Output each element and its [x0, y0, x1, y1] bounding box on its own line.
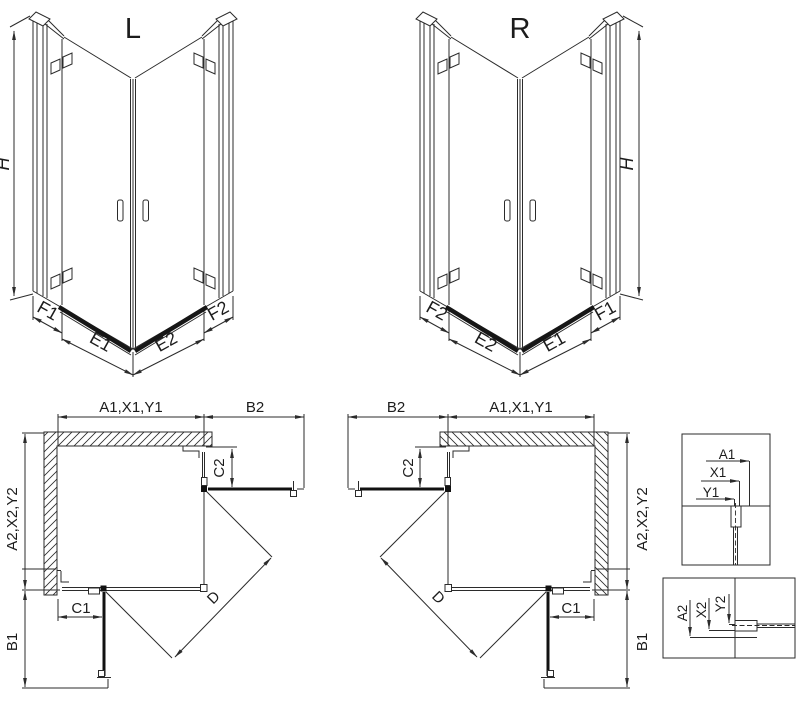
dim-label-height-right: H — [617, 157, 637, 171]
dim-label-e2-right: E2 — [471, 328, 500, 356]
dim-label-b2-planleft: B2 — [246, 399, 264, 416]
dim-label-x1-detail: X1 — [710, 465, 727, 480]
dim-label-b1-planright: B1 — [634, 633, 651, 651]
wall-profile-section — [731, 506, 741, 527]
enclosure-3d-right-view — [416, 12, 643, 377]
shower-enclosure-drawing: L H F1 E1 E2 F2 R H F2 E2 E1 F1 A1,X1,Y1… — [0, 0, 800, 704]
plan-view-left — [22, 414, 304, 688]
dim-label-f2-left: F2 — [204, 297, 232, 325]
dim-label-a2-detail: A2 — [675, 605, 690, 622]
dim-label-e1-left: E1 — [86, 328, 115, 356]
enclosure-3d-left-view — [10, 12, 237, 377]
dim-label-a1-detail: A1 — [719, 447, 736, 462]
dim-label-a1x1y1-planleft: A1,X1,Y1 — [99, 399, 162, 416]
dim-label-c2-planleft: C2 — [211, 458, 228, 477]
dim-label-y1-detail: Y1 — [703, 485, 720, 500]
dim-label-a1x1y1-planright: A1,X1,Y1 — [489, 399, 552, 416]
dim-label-a2x2y2-planright: A2,X2,Y2 — [634, 487, 651, 550]
dim-label-e2-left: E2 — [152, 328, 181, 356]
dim-label-c1-planright: C1 — [561, 600, 580, 617]
dim-label-f1-right: F1 — [591, 297, 619, 325]
dim-label-e1-right: E1 — [540, 328, 569, 356]
view-title-right: R — [510, 13, 531, 45]
wall-profile-section — [735, 621, 757, 632]
dim-label-a2x2y2-planleft: A2,X2,Y2 — [4, 487, 21, 550]
plan-view-right — [348, 414, 630, 688]
dim-label-y2-detail: Y2 — [713, 596, 728, 613]
dim-label-b2-planright: B2 — [387, 399, 405, 416]
dim-label-x2-detail: X2 — [694, 602, 709, 619]
technical-drawing-sheet: L H F1 E1 E2 F2 R H F2 E2 E1 F1 A1,X1,Y1… — [0, 0, 800, 704]
view-title-left: L — [125, 13, 141, 45]
dim-label-height-left: H — [0, 157, 13, 171]
dim-label-c2-planright: C2 — [400, 458, 417, 477]
dim-label-b1-planleft: B1 — [4, 633, 21, 651]
dim-label-f1-left: F1 — [34, 297, 62, 325]
dim-label-c1-planleft: C1 — [71, 600, 90, 617]
